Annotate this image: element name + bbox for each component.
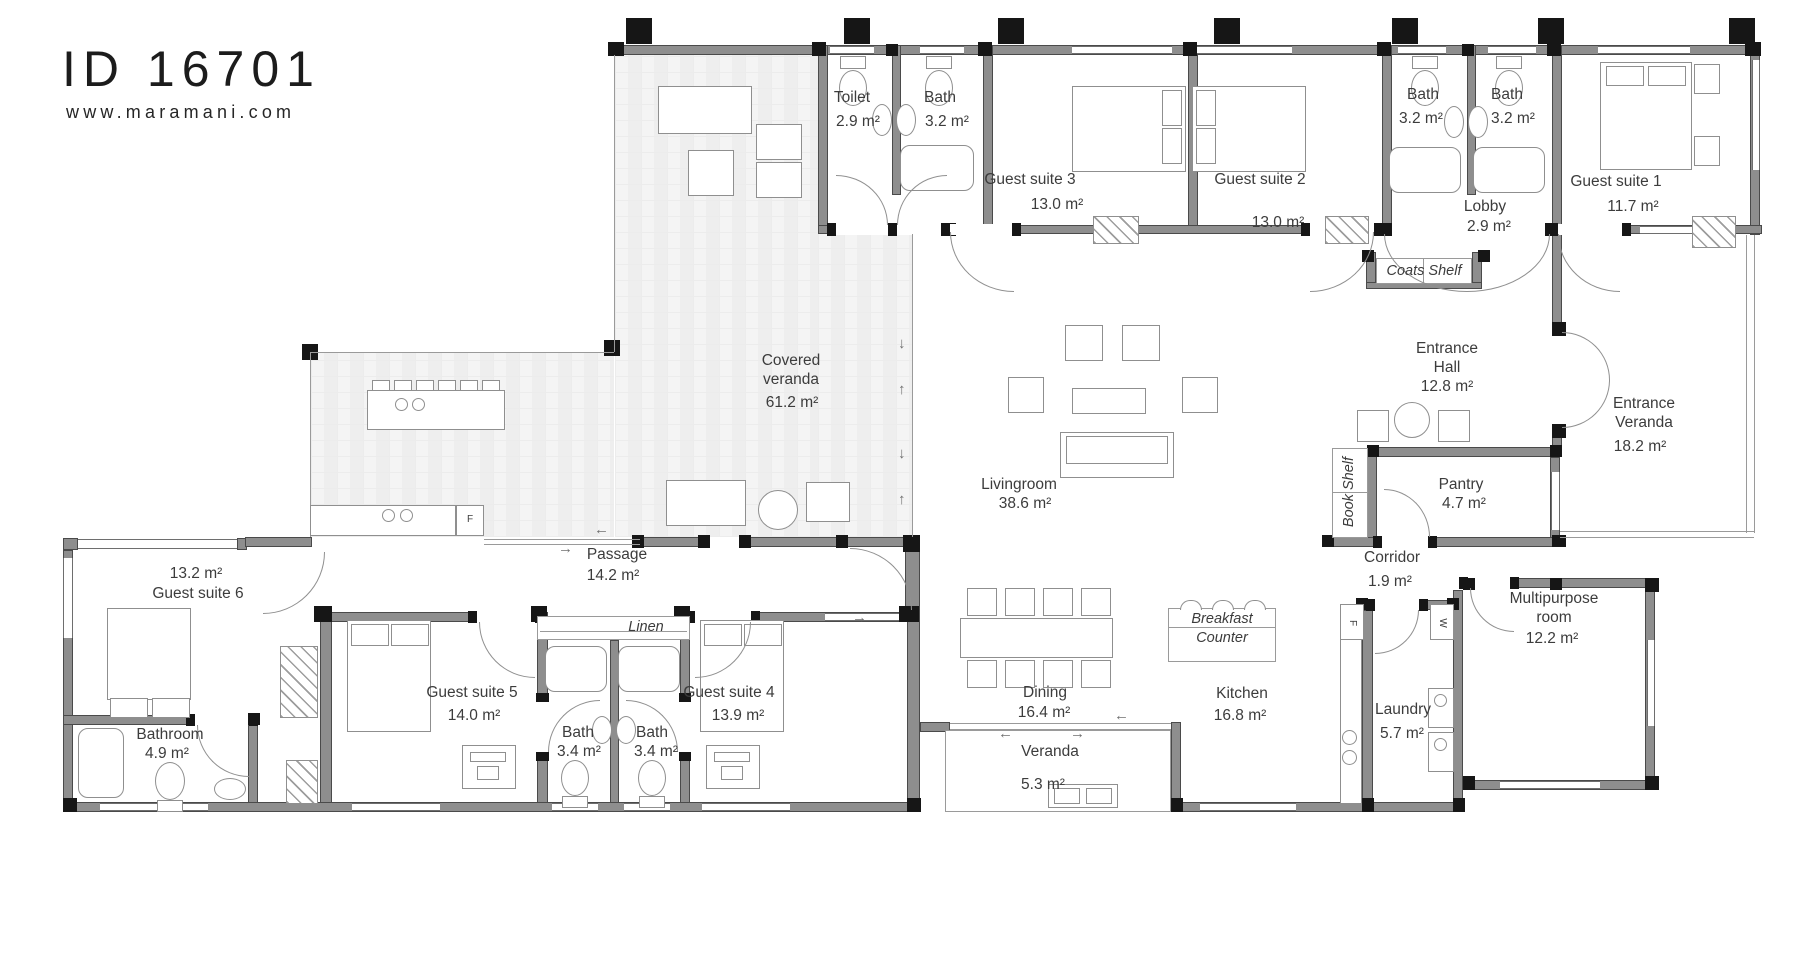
wall-post — [1462, 44, 1474, 56]
fixture-oval — [1444, 106, 1464, 138]
room-label-guest-suite-3: Guest suite 3 — [984, 171, 1075, 190]
furniture — [1196, 128, 1216, 164]
room-label-guest-suite-2: Guest suite 2 — [1214, 171, 1305, 190]
furniture — [1196, 90, 1216, 126]
furniture — [1357, 410, 1389, 442]
room-label-multipurpose-room: Multipurpose room — [1496, 590, 1612, 628]
plan-id: ID 16701 — [62, 40, 321, 98]
room-label-guest-suite-5: Guest suite 5 — [426, 684, 517, 703]
fixture-oval — [1342, 750, 1357, 765]
direction-arrow-icon: ← — [594, 522, 609, 537]
furniture — [926, 56, 952, 69]
room-area-pantry: 4.7 m² — [1442, 495, 1486, 514]
wall-post — [1214, 18, 1240, 44]
wall — [1552, 45, 1562, 232]
wall-post — [1171, 798, 1183, 812]
furniture — [688, 150, 734, 196]
door-opening — [680, 702, 690, 752]
door-swing-arc — [850, 548, 912, 610]
furniture — [960, 618, 1113, 658]
door-jamb — [827, 223, 836, 236]
furniture — [840, 56, 866, 69]
window — [1500, 781, 1600, 789]
room-area-passage: 14.2 m² — [587, 567, 640, 586]
door-jamb — [888, 223, 897, 236]
room-label-entrance-hall: Entrance Hall — [1404, 340, 1490, 378]
furniture — [967, 588, 997, 616]
shower-tray — [618, 646, 680, 692]
floor-plan-canvas: ID 16701 www.maramani.com ↓↑↓↑←→→←←→ Toi… — [0, 0, 1800, 958]
furniture — [1081, 660, 1111, 688]
furniture — [756, 162, 802, 198]
wall-post — [907, 798, 921, 812]
furniture — [1072, 388, 1146, 414]
room-area-livingroom: 38.6 m² — [999, 495, 1052, 514]
furniture — [1008, 377, 1044, 413]
furniture — [1043, 588, 1073, 616]
room-label-toilet: Toilet — [834, 89, 870, 108]
stool — [1180, 600, 1202, 610]
direction-arrow-icon: ↓ — [898, 446, 906, 461]
door-swing-arc — [836, 175, 888, 225]
wall-post — [886, 44, 898, 56]
wall-post — [1550, 578, 1562, 590]
room-area-guest-suite-2: 13.0 m² — [1252, 214, 1305, 233]
room-label-kitchen: Kitchen — [1216, 685, 1268, 704]
room-label-covered-veranda: Covered veranda — [750, 352, 832, 390]
wall — [1367, 447, 1560, 457]
stool — [1244, 600, 1266, 610]
fixture-oval — [400, 509, 413, 522]
room-label-bath-a: Bath — [924, 89, 956, 108]
wardrobe-hatch — [1692, 216, 1736, 248]
fixture-oval — [395, 398, 408, 411]
fixture-oval — [1342, 730, 1357, 745]
wall-post — [1547, 42, 1561, 56]
stool — [1212, 600, 1234, 610]
wall-post — [604, 340, 620, 356]
wall-post — [698, 535, 710, 548]
door-jamb — [1373, 536, 1382, 548]
furniture — [152, 698, 190, 718]
wall — [63, 538, 78, 550]
wall-post — [739, 535, 751, 548]
wall-post — [1362, 798, 1374, 812]
room-area-corridor: 1.9 m² — [1368, 573, 1412, 592]
plan-line — [1560, 531, 1754, 532]
wall-post — [1745, 42, 1761, 56]
wardrobe-hatch — [286, 760, 318, 804]
direction-arrow-icon: ↑ — [898, 492, 906, 507]
furniture — [107, 608, 191, 700]
wall-post — [1367, 445, 1379, 457]
wall-post — [248, 713, 260, 725]
plan-line — [950, 723, 1171, 724]
door-swing-arc — [1310, 232, 1374, 292]
wall-post — [1392, 18, 1418, 44]
door-jamb — [536, 693, 549, 702]
door-swing-arc — [1467, 234, 1550, 292]
furniture — [639, 796, 665, 808]
fixture-oval — [638, 760, 666, 796]
door-jamb — [536, 752, 549, 761]
breakfast-counter-label-line2: Counter — [1196, 630, 1248, 648]
furniture — [1694, 136, 1720, 166]
wall-post — [1550, 445, 1562, 457]
door-swing-arc — [1384, 489, 1430, 537]
furniture — [1065, 325, 1103, 361]
door-jamb — [1428, 536, 1437, 548]
fixture-oval — [1394, 402, 1430, 438]
furniture — [157, 800, 183, 812]
door-opening — [195, 715, 249, 725]
door-swing-arc — [479, 622, 535, 678]
wall-post — [903, 535, 920, 552]
window — [1200, 803, 1296, 811]
door-opening — [1375, 600, 1419, 610]
wall — [1453, 590, 1463, 812]
room-area-bath-a: 3.2 m² — [925, 113, 969, 132]
wall — [245, 537, 312, 547]
wall — [747, 537, 839, 547]
breakfast-counter-label-line1: Breakfast — [1191, 611, 1252, 629]
fixture-oval — [155, 762, 185, 800]
wall-post — [1645, 776, 1659, 790]
room-label-corridor: Corridor — [1364, 549, 1420, 568]
door-jamb — [679, 752, 691, 761]
furniture — [438, 380, 456, 391]
direction-arrow-icon: ← — [998, 726, 1013, 741]
wall-post — [836, 535, 848, 548]
wardrobe-hatch — [1093, 216, 1139, 244]
window — [78, 539, 237, 549]
door-opening — [537, 702, 548, 752]
room-area-multipurpose-room: 12.2 m² — [1526, 630, 1579, 649]
room-label-dining: Dining — [1023, 684, 1067, 703]
furniture — [658, 86, 752, 134]
window — [1647, 640, 1655, 726]
room-area-guest-suite-1: 11.7 m² — [1607, 198, 1658, 217]
website-url: www.maramani.com — [66, 102, 295, 123]
direction-arrow-icon: ← — [1114, 708, 1129, 723]
wall — [1362, 610, 1373, 812]
door-jamb — [1419, 599, 1428, 611]
plan-line — [614, 55, 615, 352]
room-label-laundry: Laundry — [1375, 701, 1431, 720]
shower-tray — [78, 728, 124, 798]
plan-line — [912, 234, 913, 537]
room-label-lobby: Lobby — [1464, 198, 1506, 217]
room-area-guest-suite-4: 13.9 m² — [712, 707, 765, 726]
room-area-bathroom: 4.9 m² — [145, 745, 189, 764]
plan-line — [311, 352, 614, 353]
plan-line — [950, 729, 1171, 730]
shower-tray — [1389, 147, 1461, 193]
window — [1551, 472, 1560, 530]
window — [1398, 46, 1446, 54]
fixture-oval — [412, 398, 425, 411]
furniture — [721, 766, 743, 780]
window — [1192, 46, 1292, 54]
wall-post — [63, 798, 77, 812]
wall-post — [844, 18, 870, 44]
furniture — [666, 480, 746, 526]
furniture — [967, 660, 997, 688]
plan-line — [1746, 235, 1747, 533]
window — [1072, 46, 1172, 54]
room-label-guest-suite-4: Guest suite 4 — [683, 684, 774, 703]
direction-arrow-icon: ↑ — [898, 382, 906, 397]
door-jamb — [468, 611, 477, 623]
room-area-entrance-veranda: 18.2 m² — [1614, 438, 1667, 457]
wall — [248, 722, 258, 812]
room-area-lobby: 2.9 m² — [1467, 218, 1511, 237]
furniture — [806, 482, 850, 522]
room-label-bath-e: Bath — [636, 724, 668, 743]
linen-label: Linen — [628, 619, 663, 637]
wall-post — [1463, 776, 1475, 790]
furniture — [482, 380, 500, 391]
room-area-entrance-hall: 12.8 m² — [1421, 378, 1474, 397]
fixture-oval — [1468, 106, 1488, 138]
room-area-guest-suite-6: 13.2 m² — [170, 565, 223, 584]
door-opening — [836, 224, 888, 235]
door-swing-arc — [197, 725, 249, 777]
direction-arrow-icon: → — [1070, 726, 1085, 741]
furniture — [1081, 588, 1111, 616]
wall — [907, 612, 920, 812]
room-area-bath-c: 3.2 m² — [1491, 110, 1535, 129]
wall-post — [608, 42, 624, 56]
furniture — [1412, 56, 1438, 69]
room-label-guest-suite-6: Guest suite 6 — [152, 585, 243, 604]
wall — [818, 45, 828, 232]
door-opening — [477, 612, 535, 622]
furniture — [1606, 66, 1644, 86]
room-area-covered-veranda: 61.2 m² — [766, 394, 819, 413]
wardrobe-hatch — [280, 646, 318, 718]
furniture — [372, 380, 390, 391]
furniture — [1005, 588, 1035, 616]
coats-shelf-label: Coats Shelf — [1387, 263, 1462, 281]
fixture-oval — [561, 760, 589, 796]
door-jamb — [1622, 223, 1631, 236]
furniture — [1438, 410, 1470, 442]
direction-arrow-icon: ↓ — [898, 336, 906, 351]
room-area-veranda: 5.3 m² — [1021, 776, 1065, 795]
wall-post — [314, 606, 332, 622]
room-label-bath-b: Bath — [1407, 86, 1439, 105]
wall — [320, 612, 332, 812]
shower-tray — [1473, 147, 1545, 193]
furniture — [351, 624, 389, 646]
room-area-bath-b: 3.2 m² — [1399, 110, 1443, 129]
room-area-bath-d: 3.4 m² — [557, 743, 601, 762]
fixture-oval — [382, 509, 395, 522]
fixture-oval — [1434, 694, 1447, 707]
door-swing-arc — [1558, 234, 1620, 292]
furniture — [310, 505, 456, 536]
washer-marker-laundry: W — [1436, 618, 1448, 627]
window — [1752, 60, 1760, 170]
room-area-toilet: 2.9 m² — [836, 113, 880, 132]
furniture — [562, 796, 588, 808]
room-area-dining: 16.4 m² — [1018, 704, 1071, 723]
direction-arrow-icon: → — [558, 541, 573, 556]
wall-post — [812, 42, 826, 56]
window — [830, 46, 874, 54]
wall — [1367, 447, 1377, 547]
fixture-oval — [1434, 738, 1447, 751]
wall-post — [1538, 18, 1564, 44]
furniture — [1694, 64, 1720, 94]
built-in-cabinet — [537, 616, 690, 640]
wall-post — [1183, 42, 1197, 56]
plan-line — [1754, 235, 1755, 533]
door-swing-arc — [950, 232, 1014, 292]
plan-line — [1560, 537, 1754, 538]
window — [920, 46, 964, 54]
furniture — [1162, 90, 1182, 126]
fridge-marker-veranda: F — [467, 514, 473, 526]
room-area-laundry: 5.7 m² — [1380, 725, 1424, 744]
furniture — [391, 624, 429, 646]
furniture — [477, 766, 499, 780]
furniture — [714, 752, 750, 762]
room-label-bath-d: Bath — [562, 724, 594, 743]
wall — [983, 45, 993, 232]
shower-tray — [545, 646, 607, 692]
window — [702, 803, 790, 811]
room-label-passage: Passage — [587, 546, 647, 565]
door-swing-arc — [1562, 332, 1610, 380]
wall — [640, 537, 700, 547]
window — [1488, 46, 1536, 54]
furniture — [394, 380, 412, 391]
furniture — [110, 698, 148, 718]
room-area-guest-suite-3: 13.0 m² — [1031, 196, 1084, 215]
furniture — [1182, 377, 1218, 413]
room-label-bath-c: Bath — [1491, 86, 1523, 105]
wall-post — [1729, 18, 1755, 44]
window — [100, 803, 208, 811]
furniture — [1162, 128, 1182, 164]
wall-post — [1377, 42, 1391, 56]
room-label-livingroom: Livingroom — [981, 476, 1057, 495]
furniture — [470, 752, 506, 762]
room-label-bathroom: Bathroom — [136, 726, 203, 745]
door-jamb — [1549, 223, 1558, 236]
door-jamb — [1374, 223, 1383, 236]
window — [1598, 46, 1690, 54]
plan-line — [540, 631, 687, 632]
direction-arrow-icon: → — [852, 610, 867, 625]
fridge-marker-kitchen: F — [1346, 620, 1358, 626]
furniture — [1340, 618, 1362, 804]
door-swing-arc — [263, 552, 325, 614]
wall-post — [1645, 578, 1659, 592]
window — [63, 558, 73, 638]
furniture — [1122, 325, 1160, 361]
wall-post — [998, 18, 1024, 44]
door-opening — [897, 224, 947, 235]
room-area-kitchen: 16.8 m² — [1214, 707, 1267, 726]
fixture-oval — [758, 490, 798, 530]
furniture — [756, 124, 802, 160]
window — [352, 803, 440, 811]
door-swing-arc — [1375, 610, 1419, 654]
furniture — [1086, 788, 1112, 804]
room-label-veranda: Veranda — [1021, 743, 1079, 762]
room-label-guest-suite-1: Guest suite 1 — [1570, 173, 1661, 192]
room-label-entrance-veranda: Entrance Veranda — [1598, 395, 1690, 433]
wall-post — [626, 18, 652, 44]
room-area-bath-e: 3.4 m² — [634, 743, 678, 762]
fixture-oval — [896, 104, 916, 136]
furniture — [416, 380, 434, 391]
wall-post — [978, 42, 992, 56]
wall-post — [1453, 798, 1465, 812]
furniture — [367, 390, 505, 430]
fixture-oval — [214, 778, 246, 800]
room-label-pantry: Pantry — [1439, 476, 1484, 495]
room-area-guest-suite-5: 14.0 m² — [448, 707, 501, 726]
book-shelf-label: Book Shelf — [1341, 457, 1359, 527]
furniture — [1066, 436, 1168, 464]
door-opening — [1382, 537, 1428, 547]
furniture — [1648, 66, 1686, 86]
wall — [1382, 45, 1392, 232]
furniture — [460, 380, 478, 391]
furniture — [1496, 56, 1522, 69]
